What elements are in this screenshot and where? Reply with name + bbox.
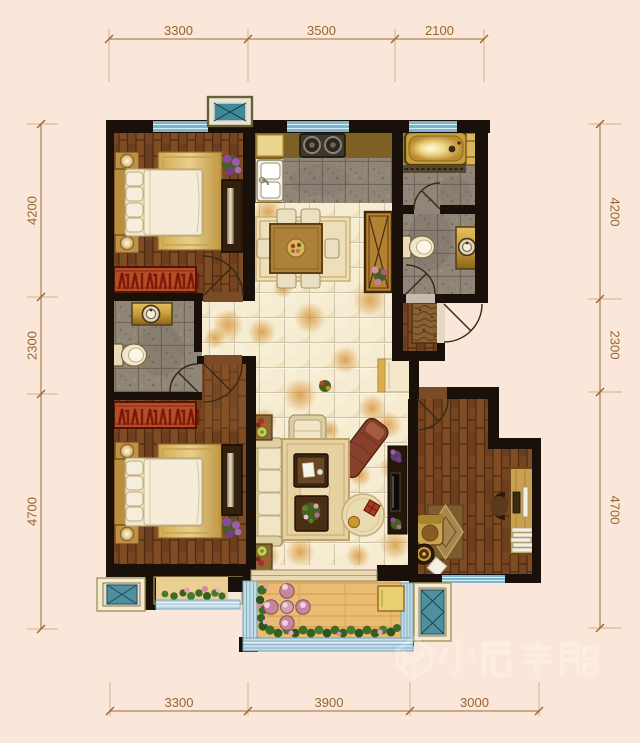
svg-text:3500: 3500: [307, 23, 336, 38]
svg-text:4700: 4700: [24, 497, 39, 526]
svg-text:2300: 2300: [24, 331, 39, 360]
svg-text:4200: 4200: [608, 198, 623, 227]
svg-text:4200: 4200: [24, 196, 39, 225]
svg-text:3900: 3900: [315, 695, 344, 710]
svg-text:3000: 3000: [460, 695, 489, 710]
svg-text:4700: 4700: [608, 496, 623, 525]
svg-text:2300: 2300: [608, 331, 623, 360]
svg-text:3300: 3300: [165, 695, 194, 710]
svg-text:3300: 3300: [164, 23, 193, 38]
svg-text:2100: 2100: [425, 23, 454, 38]
